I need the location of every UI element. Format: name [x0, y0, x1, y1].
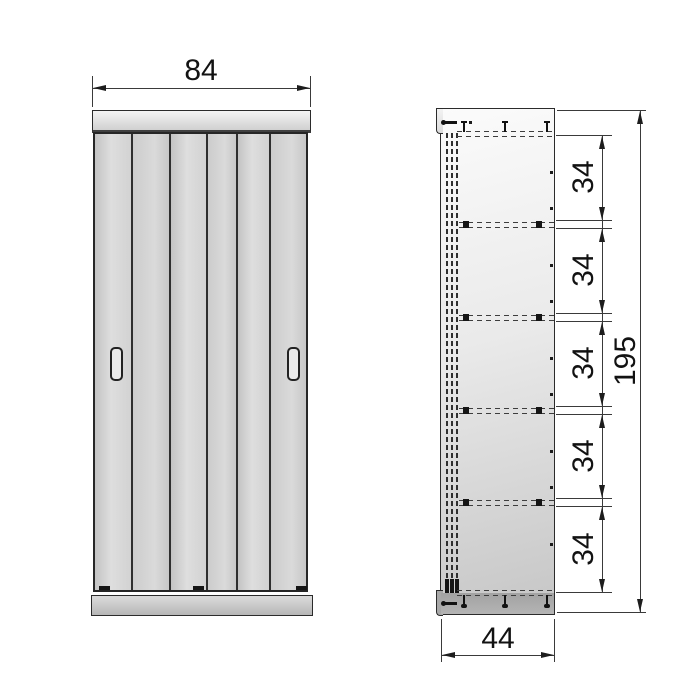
dim-arrow-down-icon: [599, 485, 605, 498]
peg-hole: [550, 450, 553, 453]
dim-tick: [557, 612, 646, 613]
dim-arrow-down-icon: [599, 579, 605, 592]
shelf-screw: [536, 407, 542, 414]
peg-hole: [550, 357, 553, 360]
dim-arrow-up-icon: [599, 507, 605, 520]
dim-arrow-down-icon: [599, 300, 605, 313]
door-plank: [236, 134, 269, 590]
shelf-screw: [463, 499, 469, 506]
bottom-fastener-pin: [502, 595, 508, 608]
door-track-rail: [456, 133, 458, 585]
wardrobe-dimension-diagram: 84: [0, 0, 700, 700]
top-fastener-pin: [461, 121, 467, 132]
dim-line-depth: [441, 655, 555, 656]
peg-hole: [550, 486, 553, 489]
door-roller: [193, 586, 204, 590]
rail-bolt: [441, 601, 457, 606]
dim-tick: [556, 406, 612, 407]
door-track-rail: [446, 133, 448, 585]
rail-foot: [445, 579, 449, 593]
dim-arrow-down-icon: [637, 599, 643, 612]
shelf-spacing-label: 34: [569, 142, 599, 212]
dim-tick: [556, 592, 612, 593]
shelf-screw: [536, 499, 542, 506]
right-door-handle: [287, 347, 300, 381]
door-roller: [296, 586, 307, 590]
dim-tick: [556, 313, 612, 314]
dim-tick: [556, 220, 612, 221]
top-fastener-pin: [502, 121, 508, 132]
top-fastener-pin: [544, 121, 550, 132]
dim-extension-line: [310, 76, 311, 107]
dim-arrow-down-icon: [599, 207, 605, 220]
shelf-spacing-label: 34: [569, 421, 599, 491]
dim-arrow-up-icon: [599, 229, 605, 242]
dim-arrow-right-icon: [297, 85, 310, 91]
shelf-spacing-label: 34: [569, 514, 599, 584]
peg-hole: [550, 264, 553, 267]
bottom-fastener-pin: [544, 595, 550, 608]
dim-arrow-up-icon: [599, 322, 605, 335]
left-door-handle: [110, 347, 123, 381]
peg-hole: [550, 543, 553, 546]
shelf-spacing-label: 34: [569, 328, 599, 398]
dim-arrow-down-icon: [599, 393, 605, 406]
side-plinth-band: [441, 593, 554, 614]
wardrobe-top-panel: [92, 110, 311, 133]
dim-arrow-up-icon: [599, 136, 605, 149]
shelf-screw: [536, 221, 542, 228]
dim-line-spacing: [602, 135, 603, 592]
peg-hole: [550, 393, 553, 396]
peg-hole: [550, 300, 553, 303]
bottom-fastener-pin: [461, 595, 467, 608]
peg-hole: [550, 207, 553, 210]
total-height-dimension-label: 195: [611, 326, 641, 396]
top-shelf-dashed-line: [457, 136, 554, 137]
door-roller: [99, 586, 110, 590]
door-plank: [206, 134, 237, 590]
depth-dimension-label: 44: [441, 624, 555, 654]
shelf-spacing-label: 34: [569, 235, 599, 305]
dim-tick: [557, 110, 646, 111]
door-plank: [131, 134, 169, 590]
door-plank: [169, 134, 206, 590]
rail-foot: [450, 579, 454, 593]
shelf-screw: [463, 221, 469, 228]
dim-arrow-up-icon: [637, 111, 643, 124]
front-width-dimension-label: 84: [92, 56, 310, 86]
dim-tick: [556, 498, 612, 499]
dim-line-width: [92, 88, 310, 89]
wardrobe-side-view: [440, 108, 555, 615]
wardrobe-front-doors: [93, 132, 308, 592]
peg-hole: [550, 171, 553, 174]
dim-extension-line: [92, 76, 93, 107]
shelf-screw: [463, 407, 469, 414]
dim-arrow-left-icon: [93, 85, 106, 91]
rail-bolt: [441, 120, 457, 125]
bottom-shelf-dashed-line: [457, 590, 554, 591]
shelf-screw: [536, 314, 542, 321]
peg-hole: [469, 121, 472, 124]
wardrobe-base-plinth: [91, 595, 313, 616]
dim-arrow-up-icon: [599, 415, 605, 428]
door-track-rail: [451, 133, 453, 585]
shelf-screw: [463, 314, 469, 321]
